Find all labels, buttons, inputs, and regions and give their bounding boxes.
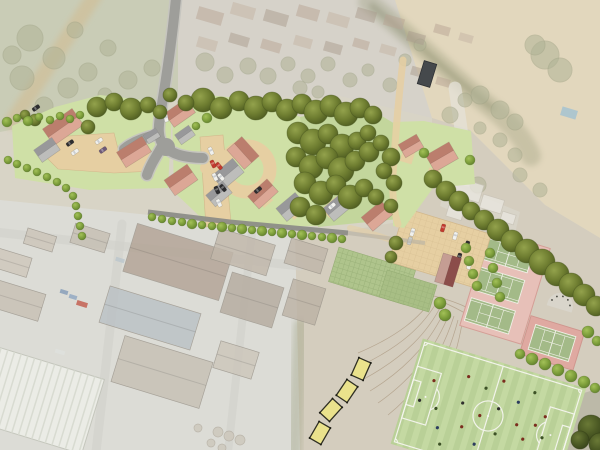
shrub: [187, 219, 197, 229]
school-hedge: [294, 326, 301, 450]
faded-tree: [260, 68, 276, 84]
masterplan-canvas: [0, 0, 600, 450]
faded-tree: [43, 47, 65, 69]
shrub: [495, 292, 505, 302]
shrub: [257, 226, 267, 236]
faded-tree: [293, 81, 307, 95]
shrub: [472, 281, 482, 291]
tree: [120, 98, 142, 120]
faded-tree: [533, 183, 547, 197]
shrub: [228, 224, 236, 232]
shrub: [461, 243, 471, 253]
shrub: [178, 218, 186, 226]
shrub: [13, 114, 21, 122]
shrub: [268, 228, 276, 236]
tree: [87, 97, 107, 117]
faded-tree: [67, 22, 83, 38]
shrub: [297, 230, 307, 240]
faded-tree: [493, 133, 507, 147]
shrub: [434, 297, 446, 309]
junction-bulb: [157, 138, 175, 156]
tree: [178, 95, 194, 111]
tree: [163, 88, 177, 102]
faded-tree: [442, 107, 458, 123]
shrub: [62, 184, 70, 192]
faded-tree: [491, 101, 509, 119]
shrub: [2, 117, 12, 127]
faded-tree: [79, 63, 97, 81]
faded-tree: [383, 78, 397, 92]
faded-tree: [100, 40, 116, 56]
dark-tree: [571, 431, 589, 449]
tree: [360, 125, 376, 141]
faded-tree: [240, 58, 256, 74]
shrub: [72, 202, 80, 210]
faded-tree: [362, 64, 374, 76]
faded-tree: [144, 60, 160, 76]
tree: [384, 199, 398, 213]
faded-tree: [10, 66, 34, 90]
shrub: [35, 113, 43, 121]
silo: [224, 431, 234, 441]
shrub: [578, 376, 590, 388]
faded-tree: [548, 58, 572, 82]
silo: [218, 444, 226, 450]
tree: [306, 205, 326, 225]
shrub: [248, 226, 256, 234]
shrub: [202, 113, 212, 123]
silo: [194, 424, 202, 432]
shrub: [217, 222, 227, 232]
shrub: [465, 155, 475, 165]
faded-tree: [217, 67, 233, 83]
shrub: [468, 269, 478, 279]
faded-tree: [321, 57, 335, 71]
shrub: [69, 192, 77, 200]
faded-tree: [281, 57, 295, 71]
shrub: [492, 278, 502, 288]
tree: [389, 236, 403, 250]
shrub: [23, 116, 33, 126]
shrub: [76, 111, 84, 119]
shrub: [78, 232, 86, 240]
shrub: [318, 233, 326, 241]
faded-tree: [3, 46, 21, 64]
silo: [235, 435, 245, 445]
silo: [207, 439, 215, 447]
shrub: [419, 148, 429, 158]
shrub: [439, 309, 451, 321]
tree: [385, 251, 397, 263]
shrub: [338, 235, 346, 243]
shrub: [56, 112, 64, 120]
faded-tree: [119, 71, 137, 89]
shrub: [43, 173, 51, 181]
faded-tree: [17, 25, 43, 51]
shrub: [582, 326, 594, 338]
masterplan-svg: [0, 0, 600, 450]
faded-tree: [301, 69, 315, 83]
shrub: [13, 160, 21, 168]
shrub: [168, 217, 176, 225]
shrub: [488, 263, 498, 273]
faded-tree: [507, 114, 523, 130]
shrub: [33, 168, 41, 176]
shrub: [485, 248, 495, 258]
shrub: [288, 230, 296, 238]
tree: [386, 175, 402, 191]
shrub: [308, 232, 316, 240]
shrub: [515, 349, 525, 359]
shrub: [148, 213, 156, 221]
shrub: [46, 116, 54, 124]
shrub: [464, 256, 474, 266]
shrub: [76, 222, 84, 230]
tree: [364, 106, 382, 124]
shrub: [552, 364, 564, 376]
shrub: [526, 353, 538, 365]
silo: [213, 427, 223, 437]
faded-tree: [312, 86, 324, 98]
faded-tree: [508, 148, 522, 162]
shrub: [192, 122, 200, 130]
shrub: [565, 370, 577, 382]
shrub: [74, 212, 82, 220]
shrub: [208, 222, 216, 230]
faded-tree: [196, 53, 214, 71]
shrub: [327, 233, 337, 243]
faded-tree: [513, 168, 527, 182]
tree: [153, 105, 167, 119]
faded-tree: [525, 35, 545, 55]
shrub: [590, 383, 600, 393]
tree: [373, 135, 389, 151]
shrub: [53, 178, 61, 186]
faded-tree: [343, 73, 357, 87]
tree: [81, 120, 95, 134]
shrub: [237, 224, 247, 234]
faded-tree: [471, 86, 489, 104]
shrub: [158, 215, 166, 223]
shrub: [592, 336, 600, 346]
faded-tree: [474, 122, 486, 134]
shrub: [539, 358, 551, 370]
shrub: [4, 156, 12, 164]
shrub: [66, 115, 74, 123]
faded-tree: [458, 93, 472, 107]
shrub: [277, 228, 287, 238]
tree: [368, 189, 384, 205]
shrub: [23, 164, 31, 172]
shrub: [198, 221, 206, 229]
faded-tree: [58, 78, 78, 98]
